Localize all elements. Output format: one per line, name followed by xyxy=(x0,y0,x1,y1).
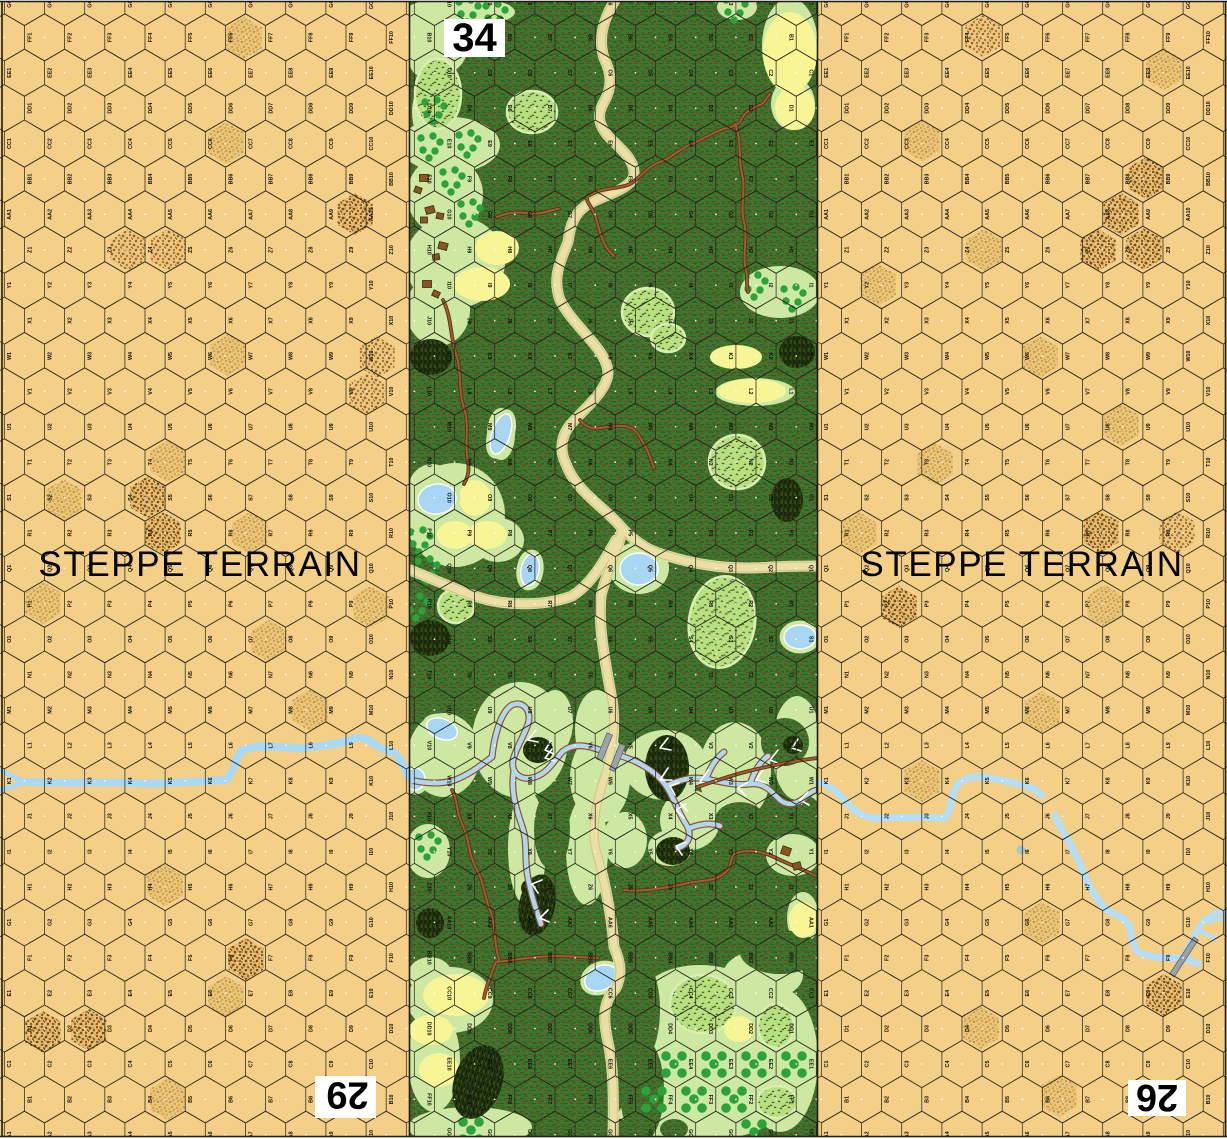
svg-text:FF10: FF10 xyxy=(426,1093,432,1106)
svg-text:Q10: Q10 xyxy=(369,563,375,573)
svg-text:K8: K8 xyxy=(1106,777,1112,784)
svg-text:B6: B6 xyxy=(1045,1096,1051,1103)
svg-text:BB7: BB7 xyxy=(269,174,275,185)
svg-text:Z1: Z1 xyxy=(844,247,850,253)
svg-text:BB5: BB5 xyxy=(188,174,194,185)
svg-text:W4: W4 xyxy=(128,352,134,360)
svg-text:W10: W10 xyxy=(1186,350,1192,361)
svg-text:P6: P6 xyxy=(228,601,234,608)
svg-text:P6: P6 xyxy=(1045,601,1051,608)
svg-text:CC10: CC10 xyxy=(446,986,452,1000)
svg-text:Z3: Z3 xyxy=(925,247,931,253)
svg-text:F8: F8 xyxy=(1126,955,1132,961)
svg-text:I5: I5 xyxy=(168,849,174,854)
svg-text:J9: J9 xyxy=(1166,813,1172,819)
svg-text:R7: R7 xyxy=(546,600,552,607)
svg-text:FF1: FF1 xyxy=(787,1095,793,1105)
svg-text:Q10: Q10 xyxy=(1186,563,1192,573)
svg-text:M5: M5 xyxy=(168,706,174,714)
svg-text:P5: P5 xyxy=(188,601,194,608)
svg-text:H9: H9 xyxy=(1166,884,1172,891)
svg-text:L4: L4 xyxy=(667,388,673,394)
svg-text:H5: H5 xyxy=(627,246,633,253)
svg-text:V2: V2 xyxy=(68,388,74,395)
svg-text:B1: B1 xyxy=(787,34,793,41)
svg-text:O8: O8 xyxy=(1106,636,1112,643)
svg-text:S4: S4 xyxy=(128,494,134,501)
svg-text:K7: K7 xyxy=(566,353,572,360)
svg-text:M10: M10 xyxy=(369,705,375,716)
svg-text:P1: P1 xyxy=(844,601,850,608)
svg-text:BB4: BB4 xyxy=(965,174,971,185)
svg-text:I6: I6 xyxy=(1025,849,1031,854)
svg-text:AA4: AA4 xyxy=(128,209,134,220)
svg-text:F9: F9 xyxy=(349,955,355,961)
svg-text:V7: V7 xyxy=(1086,388,1092,395)
svg-text:DD2: DD2 xyxy=(747,1023,753,1034)
svg-text:B5: B5 xyxy=(1005,1096,1011,1103)
svg-text:AA4: AA4 xyxy=(945,209,951,220)
svg-text:T4: T4 xyxy=(965,459,971,465)
svg-text:DD1: DD1 xyxy=(787,1023,793,1034)
svg-text:EE8: EE8 xyxy=(526,1059,532,1069)
svg-text:EE4: EE4 xyxy=(128,68,134,78)
svg-text:P5: P5 xyxy=(627,530,633,537)
svg-text:N2: N2 xyxy=(885,671,891,678)
svg-text:M5: M5 xyxy=(647,423,653,431)
svg-text:EE8: EE8 xyxy=(1106,68,1112,78)
svg-text:R6: R6 xyxy=(1045,530,1051,537)
svg-text:C3: C3 xyxy=(905,1061,911,1068)
svg-text:O2: O2 xyxy=(864,636,870,643)
svg-text:X7: X7 xyxy=(1086,317,1092,324)
svg-text:E9: E9 xyxy=(486,140,492,147)
svg-text:C1: C1 xyxy=(7,1061,13,1068)
svg-text:O5: O5 xyxy=(985,636,991,643)
svg-text:W6: W6 xyxy=(1025,352,1031,360)
svg-text:D2: D2 xyxy=(68,1025,74,1032)
svg-text:EE1: EE1 xyxy=(807,1059,813,1069)
svg-text:G3: G3 xyxy=(727,211,733,218)
svg-text:S9: S9 xyxy=(1146,494,1152,501)
svg-text:X8: X8 xyxy=(309,317,315,324)
svg-text:J9: J9 xyxy=(349,813,355,819)
svg-text:Y2: Y2 xyxy=(767,848,773,855)
svg-text:Y10: Y10 xyxy=(446,847,452,857)
svg-text:E7: E7 xyxy=(1065,990,1071,997)
svg-text:J6: J6 xyxy=(1045,813,1051,819)
svg-text:U6: U6 xyxy=(208,423,214,430)
svg-text:J1: J1 xyxy=(844,813,850,819)
svg-text:U1: U1 xyxy=(7,423,13,430)
svg-text:I1: I1 xyxy=(7,849,13,854)
svg-text:L8: L8 xyxy=(1126,742,1132,748)
svg-text:V5: V5 xyxy=(188,388,194,395)
svg-text:R7: R7 xyxy=(1086,530,1092,537)
svg-text:C1: C1 xyxy=(807,69,813,76)
svg-text:DD9: DD9 xyxy=(466,1023,472,1034)
svg-text:F3: F3 xyxy=(925,955,931,961)
svg-text:AA2: AA2 xyxy=(767,917,773,928)
svg-text:G8: G8 xyxy=(289,919,295,926)
svg-text:L6: L6 xyxy=(1045,742,1051,748)
svg-text:O1: O1 xyxy=(807,494,813,501)
svg-text:O4: O4 xyxy=(128,636,134,643)
svg-text:M4: M4 xyxy=(945,706,951,714)
svg-text:J6: J6 xyxy=(228,813,234,819)
svg-text:AA9: AA9 xyxy=(329,209,335,220)
svg-text:W8: W8 xyxy=(1106,352,1112,360)
svg-text:C6: C6 xyxy=(208,1061,214,1068)
svg-text:S1: S1 xyxy=(7,494,13,501)
svg-text:E4: E4 xyxy=(687,140,693,147)
svg-text:FF7: FF7 xyxy=(1086,33,1092,43)
svg-text:BB10: BB10 xyxy=(426,951,432,965)
svg-text:CC5: CC5 xyxy=(647,988,653,999)
svg-text:N7: N7 xyxy=(1086,671,1092,678)
svg-text:Y4: Y4 xyxy=(128,282,134,289)
svg-text:C2: C2 xyxy=(47,1061,53,1068)
svg-text:P2: P2 xyxy=(747,530,753,537)
svg-text:O3: O3 xyxy=(88,636,94,643)
svg-text:Y4: Y4 xyxy=(945,282,951,289)
svg-text:F1: F1 xyxy=(844,955,850,961)
svg-text:K9: K9 xyxy=(1146,777,1152,784)
svg-text:Y10: Y10 xyxy=(1186,280,1192,290)
svg-text:S8: S8 xyxy=(289,494,295,501)
svg-text:W9: W9 xyxy=(329,352,335,360)
svg-text:N1: N1 xyxy=(787,459,793,466)
svg-text:C2: C2 xyxy=(864,1061,870,1068)
svg-text:Z6: Z6 xyxy=(586,884,592,890)
svg-text:EE2: EE2 xyxy=(864,68,870,78)
svg-text:Y8: Y8 xyxy=(1106,282,1112,289)
svg-text:F10: F10 xyxy=(1206,953,1212,962)
svg-text:C3: C3 xyxy=(88,1061,94,1068)
svg-text:BB6: BB6 xyxy=(586,952,592,963)
svg-text:M2: M2 xyxy=(47,706,53,714)
svg-text:D9: D9 xyxy=(349,1025,355,1032)
svg-text:D7: D7 xyxy=(1086,1025,1092,1032)
svg-text:X1: X1 xyxy=(844,317,850,324)
svg-text:N9: N9 xyxy=(349,671,355,678)
svg-text:P10: P10 xyxy=(1206,599,1212,609)
svg-text:BB6: BB6 xyxy=(1045,174,1051,185)
svg-text:H6: H6 xyxy=(586,246,592,253)
svg-text:H7: H7 xyxy=(546,246,552,253)
svg-text:O9: O9 xyxy=(329,636,335,643)
svg-text:I2: I2 xyxy=(864,849,870,854)
svg-text:X5: X5 xyxy=(627,813,633,820)
svg-text:H10: H10 xyxy=(426,245,432,255)
svg-text:CC4: CC4 xyxy=(128,138,134,149)
svg-text:BB9: BB9 xyxy=(1166,174,1172,185)
svg-text:AA5: AA5 xyxy=(647,917,653,928)
svg-text:W1: W1 xyxy=(807,777,813,785)
svg-text:W2: W2 xyxy=(864,352,870,360)
svg-text:AA7: AA7 xyxy=(566,917,572,928)
svg-text:T1: T1 xyxy=(844,459,850,465)
svg-text:J5: J5 xyxy=(627,318,633,324)
svg-text:O4: O4 xyxy=(687,494,693,501)
svg-text:D10: D10 xyxy=(389,1024,395,1034)
svg-text:U7: U7 xyxy=(1065,423,1071,430)
svg-text:V4: V4 xyxy=(667,742,673,749)
svg-text:DD6: DD6 xyxy=(586,1023,592,1034)
svg-text:I3: I3 xyxy=(905,849,911,854)
svg-text:AA8: AA8 xyxy=(289,209,295,220)
svg-text:DD5: DD5 xyxy=(627,1023,633,1034)
svg-text:EE2: EE2 xyxy=(767,1059,773,1069)
svg-text:BB8: BB8 xyxy=(506,952,512,963)
svg-text:F4: F4 xyxy=(965,955,971,961)
svg-text:D10: D10 xyxy=(426,103,432,113)
svg-text:BB4: BB4 xyxy=(148,174,154,185)
svg-text:B3: B3 xyxy=(707,34,713,41)
svg-text:R5: R5 xyxy=(188,530,194,537)
svg-text:EE6: EE6 xyxy=(1025,68,1031,78)
svg-text:K1: K1 xyxy=(7,777,13,784)
svg-text:Z1: Z1 xyxy=(787,884,793,890)
svg-text:F2: F2 xyxy=(68,955,74,961)
svg-text:R8: R8 xyxy=(309,530,315,537)
svg-text:E4: E4 xyxy=(128,990,134,997)
svg-text:AA6: AA6 xyxy=(606,917,612,928)
svg-text:S9: S9 xyxy=(329,494,335,501)
svg-text:STEPPE TERRAIN: STEPPE TERRAIN xyxy=(38,545,361,584)
svg-text:G4: G4 xyxy=(945,919,951,926)
svg-text:CC8: CC8 xyxy=(289,138,295,149)
svg-text:B8: B8 xyxy=(506,34,512,41)
svg-text:K1: K1 xyxy=(807,353,813,360)
svg-text:AA9: AA9 xyxy=(1146,209,1152,220)
svg-text:N4: N4 xyxy=(667,459,673,466)
svg-text:U3: U3 xyxy=(727,707,733,714)
svg-text:O7: O7 xyxy=(248,636,254,643)
svg-text:CC5: CC5 xyxy=(168,138,174,149)
svg-text:Z9: Z9 xyxy=(466,884,472,890)
svg-text:R5: R5 xyxy=(627,600,633,607)
svg-text:K6: K6 xyxy=(606,353,612,360)
svg-text:Y2: Y2 xyxy=(47,282,53,289)
svg-text:X4: X4 xyxy=(667,813,673,820)
svg-text:N3: N3 xyxy=(707,459,713,466)
svg-text:L4: L4 xyxy=(965,742,971,748)
svg-text:AA6: AA6 xyxy=(208,209,214,220)
svg-text:I7: I7 xyxy=(566,283,572,288)
svg-text:P1: P1 xyxy=(27,601,33,608)
svg-text:S10: S10 xyxy=(1186,493,1192,503)
svg-text:U7: U7 xyxy=(248,423,254,430)
svg-text:M2: M2 xyxy=(767,423,773,431)
svg-text:C7: C7 xyxy=(566,69,572,76)
svg-text:S7: S7 xyxy=(566,636,572,643)
svg-text:DD8: DD8 xyxy=(309,103,315,114)
svg-text:S3: S3 xyxy=(905,494,911,501)
svg-text:FF4: FF4 xyxy=(667,1095,673,1105)
svg-text:B5: B5 xyxy=(188,1096,194,1103)
svg-text:O3: O3 xyxy=(727,494,733,501)
svg-text:B2: B2 xyxy=(68,1096,74,1103)
svg-text:H3: H3 xyxy=(925,884,931,891)
svg-text:X5: X5 xyxy=(188,317,194,324)
svg-text:N7: N7 xyxy=(269,671,275,678)
svg-text:P5: P5 xyxy=(1005,601,1011,608)
svg-text:Y6: Y6 xyxy=(606,848,612,855)
svg-text:L1: L1 xyxy=(27,742,33,748)
svg-text:AA7: AA7 xyxy=(248,209,254,220)
svg-text:H2: H2 xyxy=(747,246,753,253)
svg-text:K5: K5 xyxy=(168,777,174,784)
svg-text:Z3: Z3 xyxy=(108,247,114,253)
svg-text:DD7: DD7 xyxy=(1086,103,1092,114)
svg-text:P4: P4 xyxy=(148,601,154,608)
svg-text:F10: F10 xyxy=(426,174,432,183)
svg-text:BB4: BB4 xyxy=(667,952,673,963)
svg-text:I9: I9 xyxy=(1146,849,1152,854)
svg-text:G10: G10 xyxy=(369,917,375,927)
svg-text:Z2: Z2 xyxy=(885,247,891,253)
svg-text:C3: C3 xyxy=(727,69,733,76)
svg-text:P10: P10 xyxy=(426,528,432,538)
svg-text:Y5: Y5 xyxy=(985,282,991,289)
svg-text:DD6: DD6 xyxy=(228,103,234,114)
svg-text:S8: S8 xyxy=(1106,494,1112,501)
svg-text:R1: R1 xyxy=(27,530,33,537)
svg-text:V8: V8 xyxy=(506,742,512,749)
svg-text:B2: B2 xyxy=(747,34,753,41)
svg-text:X9: X9 xyxy=(466,813,472,820)
svg-text:EE7: EE7 xyxy=(248,68,254,78)
svg-text:Y6: Y6 xyxy=(208,282,214,289)
svg-text:B8: B8 xyxy=(309,1096,315,1103)
svg-text:J7: J7 xyxy=(546,318,552,324)
svg-text:BB8: BB8 xyxy=(309,174,315,185)
svg-text:Z4: Z4 xyxy=(965,247,971,253)
svg-text:J2: J2 xyxy=(747,318,753,324)
svg-text:Y3: Y3 xyxy=(727,848,733,855)
svg-text:M10: M10 xyxy=(1186,705,1192,716)
svg-text:B6: B6 xyxy=(228,1096,234,1103)
svg-text:Z5: Z5 xyxy=(188,247,194,253)
svg-text:X1: X1 xyxy=(787,813,793,820)
svg-text:D9: D9 xyxy=(466,105,472,112)
svg-text:N10: N10 xyxy=(426,457,432,467)
svg-text:T8: T8 xyxy=(506,671,512,677)
svg-text:C8: C8 xyxy=(526,69,532,76)
svg-text:E9: E9 xyxy=(1146,990,1152,997)
svg-text:G5: G5 xyxy=(647,211,653,218)
svg-text:F1: F1 xyxy=(787,176,793,182)
svg-text:E8: E8 xyxy=(526,140,532,147)
svg-text:BB3: BB3 xyxy=(925,174,931,185)
svg-text:G9: G9 xyxy=(1146,919,1152,926)
svg-text:M10: M10 xyxy=(446,422,452,433)
svg-text:D1: D1 xyxy=(787,105,793,112)
svg-text:M9: M9 xyxy=(1146,706,1152,714)
svg-text:X3: X3 xyxy=(108,317,114,324)
svg-text:F4: F4 xyxy=(667,176,673,182)
svg-text:U5: U5 xyxy=(985,423,991,430)
svg-text:S4: S4 xyxy=(687,636,693,643)
svg-text:K9: K9 xyxy=(486,353,492,360)
svg-text:FF8: FF8 xyxy=(506,1095,512,1105)
svg-text:L10: L10 xyxy=(389,741,395,750)
svg-text:H3: H3 xyxy=(108,884,114,891)
svg-text:W3: W3 xyxy=(88,352,94,360)
svg-text:AA5: AA5 xyxy=(985,209,991,220)
svg-text:P3: P3 xyxy=(108,601,114,608)
svg-text:Q1: Q1 xyxy=(7,565,13,572)
svg-text:AA10: AA10 xyxy=(446,916,452,930)
svg-text:D6: D6 xyxy=(586,105,592,112)
svg-text:Q1: Q1 xyxy=(807,565,813,572)
svg-text:DD5: DD5 xyxy=(188,103,194,114)
svg-text:P2: P2 xyxy=(68,601,74,608)
svg-text:E7: E7 xyxy=(566,140,572,147)
svg-text:FF9: FF9 xyxy=(466,1095,472,1105)
svg-text:L5: L5 xyxy=(627,388,633,394)
svg-text:AA5: AA5 xyxy=(168,209,174,220)
svg-text:V8: V8 xyxy=(309,388,315,395)
svg-text:B4: B4 xyxy=(667,34,673,41)
svg-text:D3: D3 xyxy=(925,1025,931,1032)
svg-text:Y1: Y1 xyxy=(824,282,830,289)
svg-text:C4: C4 xyxy=(128,1061,134,1068)
svg-text:Z5: Z5 xyxy=(1005,247,1011,253)
svg-text:I8: I8 xyxy=(1106,849,1112,854)
svg-text:K10: K10 xyxy=(446,351,452,361)
svg-text:L4: L4 xyxy=(148,742,154,748)
svg-text:AA1: AA1 xyxy=(807,917,813,928)
svg-text:F8: F8 xyxy=(506,176,512,182)
svg-text:S10: S10 xyxy=(369,493,375,503)
svg-text:T8: T8 xyxy=(309,459,315,465)
svg-text:L5: L5 xyxy=(1005,742,1011,748)
svg-text:Y4: Y4 xyxy=(687,848,693,855)
svg-text:W7: W7 xyxy=(1065,352,1071,360)
svg-text:EE2: EE2 xyxy=(47,68,53,78)
svg-text:V6: V6 xyxy=(1045,388,1051,395)
svg-text:P4: P4 xyxy=(965,601,971,608)
svg-text:V9: V9 xyxy=(349,388,355,395)
svg-text:P7: P7 xyxy=(269,601,275,608)
svg-text:O2: O2 xyxy=(47,636,53,643)
svg-text:STEPPE TERRAIN: STEPPE TERRAIN xyxy=(860,545,1183,584)
svg-text:Y5: Y5 xyxy=(168,282,174,289)
svg-text:N9: N9 xyxy=(466,459,472,466)
svg-text:J4: J4 xyxy=(667,318,673,324)
svg-text:H4: H4 xyxy=(667,246,673,253)
svg-text:C4: C4 xyxy=(945,1061,951,1068)
svg-text:DD4: DD4 xyxy=(667,1023,673,1034)
svg-text:T3: T3 xyxy=(108,459,114,465)
svg-text:P7: P7 xyxy=(546,530,552,537)
svg-text:N4: N4 xyxy=(148,671,154,678)
svg-text:U6: U6 xyxy=(1025,423,1031,430)
svg-text:W7: W7 xyxy=(248,352,254,360)
svg-text:FF1: FF1 xyxy=(27,33,33,43)
svg-text:EE8: EE8 xyxy=(289,68,295,78)
svg-text:J3: J3 xyxy=(108,813,114,819)
svg-text:C5: C5 xyxy=(985,1061,991,1068)
svg-text:J10: J10 xyxy=(389,812,395,821)
svg-text:M2: M2 xyxy=(864,706,870,714)
svg-text:L3: L3 xyxy=(925,742,931,748)
svg-text:W1: W1 xyxy=(824,352,830,360)
svg-text:EE6: EE6 xyxy=(606,1059,612,1069)
svg-text:I3: I3 xyxy=(88,849,94,854)
